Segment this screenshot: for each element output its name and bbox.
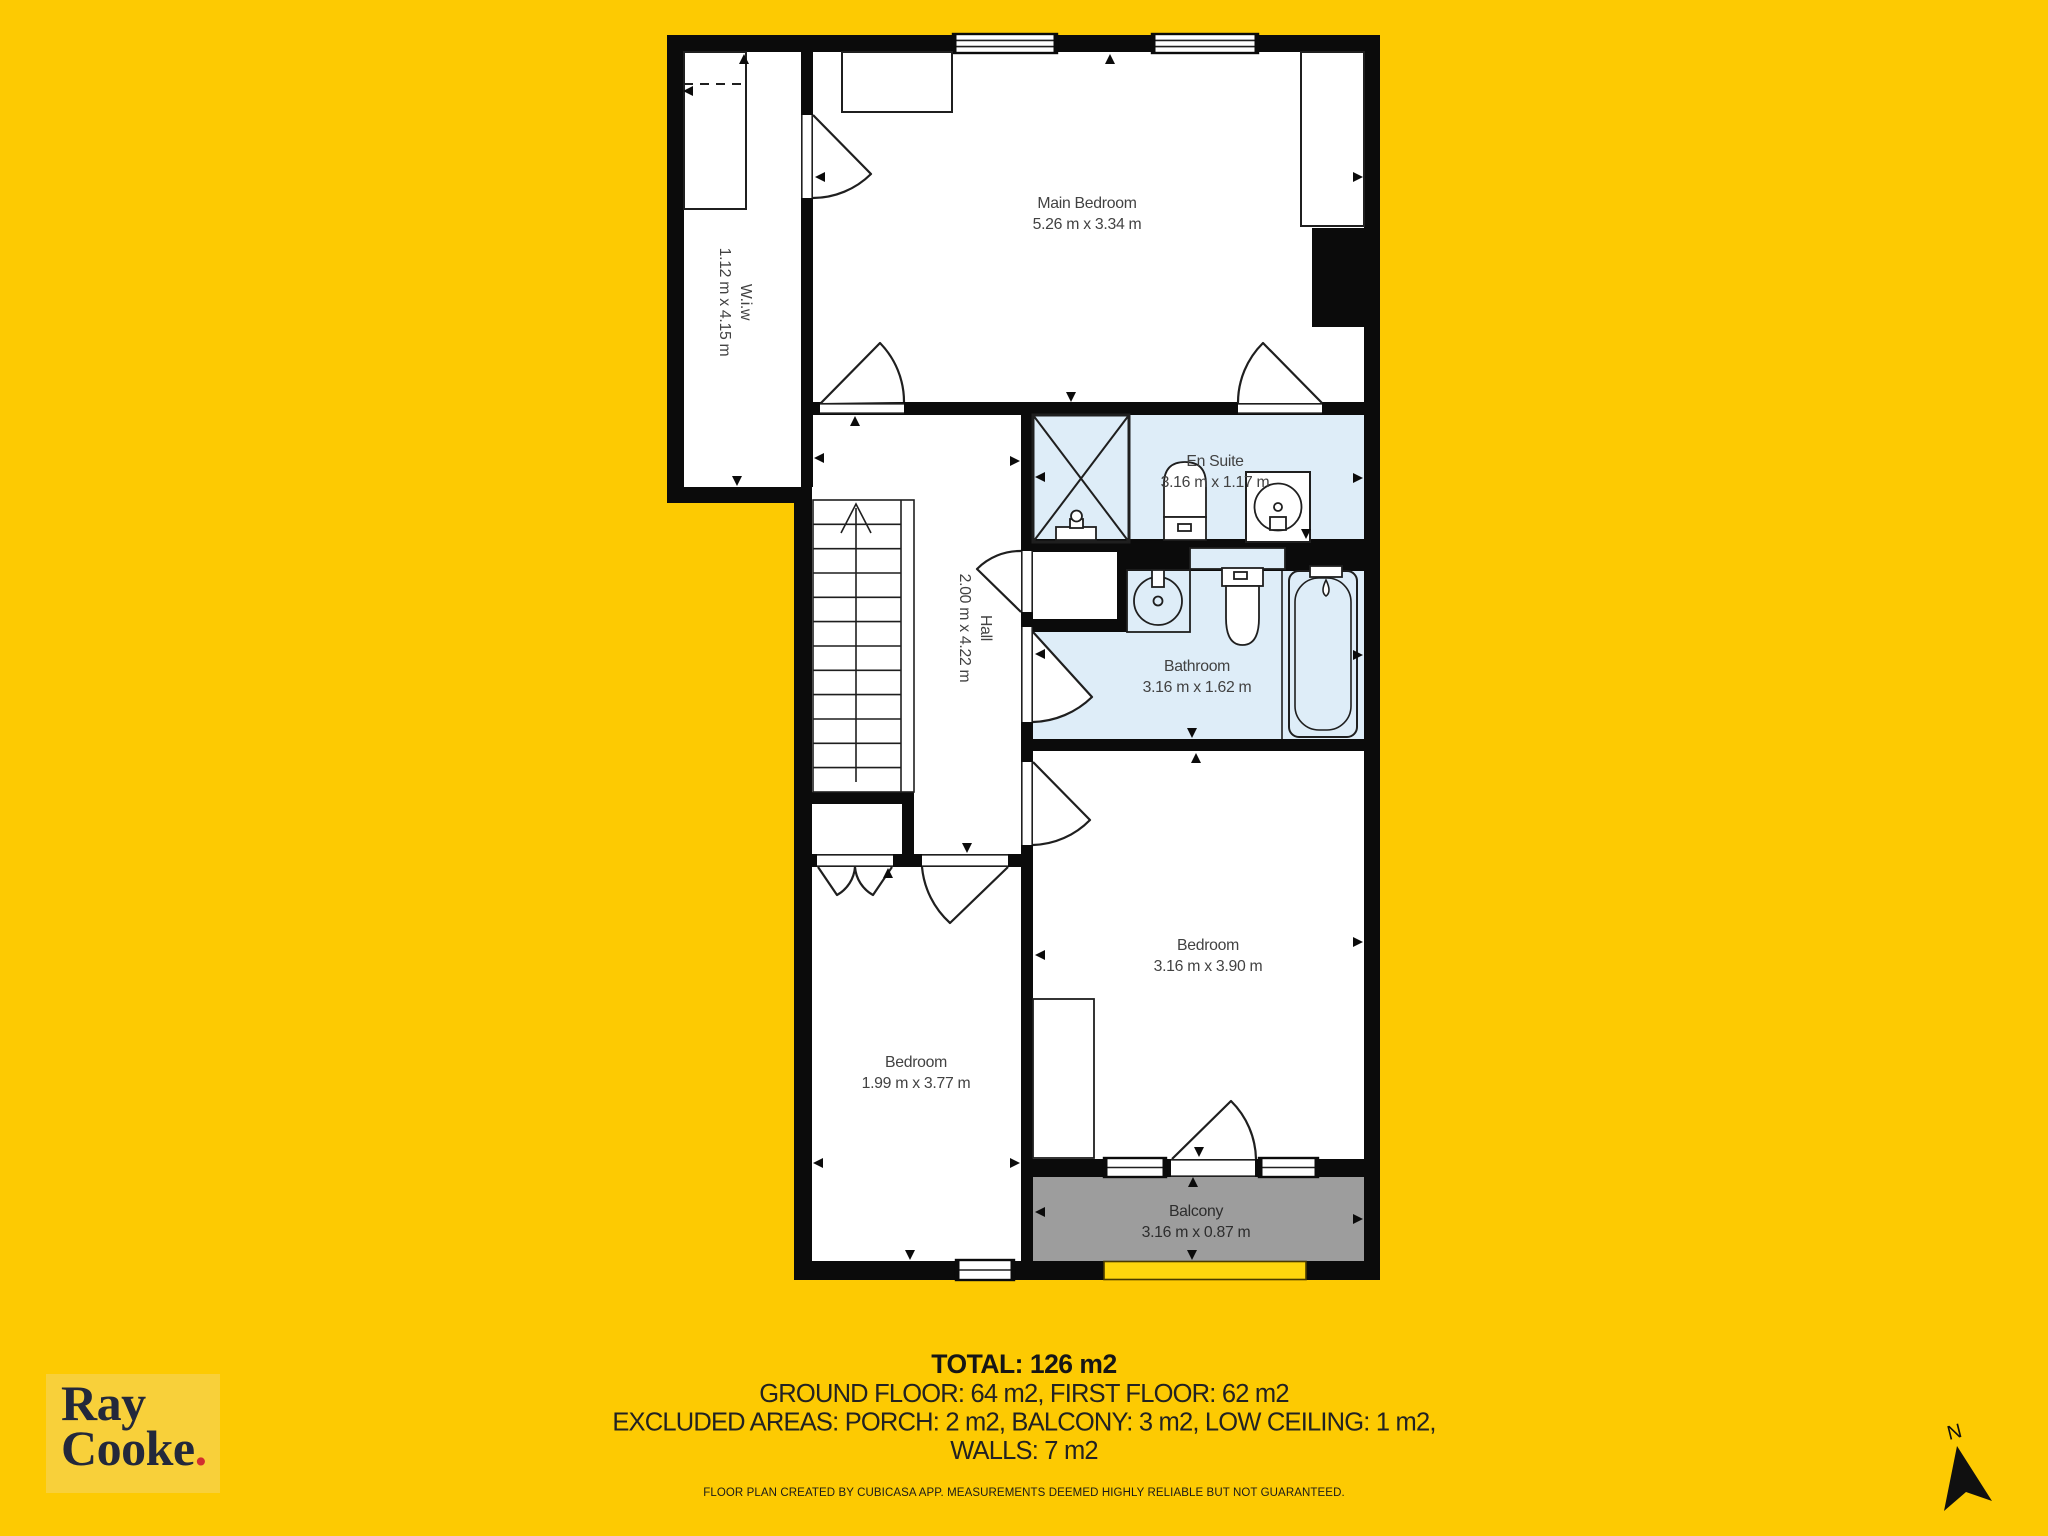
svg-text:Bathroom: Bathroom [1164, 658, 1230, 675]
svg-text:3.16 m x 0.87 m: 3.16 m x 0.87 m [1142, 1224, 1251, 1241]
svg-text:Hall: Hall [977, 615, 994, 641]
svg-text:3.16 m x 1.17 m: 3.16 m x 1.17 m [1161, 474, 1270, 491]
svg-text:EXCLUDED AREAS: PORCH: 2 m2, B: EXCLUDED AREAS: PORCH: 2 m2, BALCONY: 3 … [612, 1409, 1435, 1437]
svg-text:Bedroom: Bedroom [885, 1054, 947, 1071]
svg-text:3.16 m x 3.90 m: 3.16 m x 3.90 m [1154, 958, 1263, 975]
svg-text:GROUND FLOOR: 64 m2, FIRST FLO: GROUND FLOOR: 64 m2, FIRST FLOOR: 62 m2 [759, 1380, 1288, 1408]
svg-text:5.26 m x 3.34 m: 5.26 m x 3.34 m [1033, 216, 1142, 233]
svg-text:1.99 m x 3.77 m: 1.99 m x 3.77 m [862, 1075, 971, 1092]
svg-text:2.00 m x 4.22 m: 2.00 m x 4.22 m [956, 574, 973, 683]
svg-text:En Suite: En Suite [1186, 453, 1244, 470]
svg-text:1.12 m x 4.15 m: 1.12 m x 4.15 m [716, 248, 733, 357]
svg-text:FLOOR PLAN CREATED BY CUBICASA: FLOOR PLAN CREATED BY CUBICASA APP. MEAS… [703, 1487, 1345, 1499]
svg-text:W.i.w: W.i.w [737, 284, 754, 321]
svg-text:WALLS: 7 m2: WALLS: 7 m2 [950, 1437, 1098, 1465]
svg-text:Balcony: Balcony [1169, 1203, 1224, 1220]
svg-text:Bedroom: Bedroom [1177, 937, 1239, 954]
svg-text:Cooke.: Cooke. [61, 1420, 207, 1476]
svg-text:3.16 m x 1.62 m: 3.16 m x 1.62 m [1143, 679, 1252, 696]
svg-text:TOTAL: 126 m2: TOTAL: 126 m2 [931, 1349, 1116, 1379]
svg-text:Main Bedroom: Main Bedroom [1037, 195, 1136, 212]
